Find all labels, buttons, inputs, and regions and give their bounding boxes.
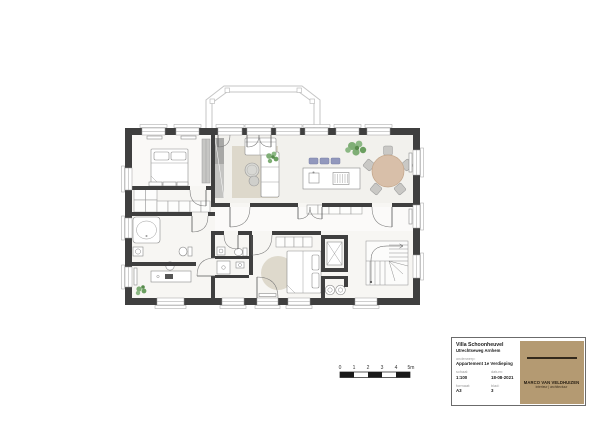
scale-label-4: 4 [395, 365, 398, 371]
wardrobe [202, 139, 210, 183]
windows-left [122, 166, 133, 289]
bedroom2-bed [287, 251, 321, 293]
windows-right [413, 148, 424, 280]
master-bed [151, 149, 188, 185]
sheet-value: 3 [491, 388, 518, 393]
bathroom-sink [133, 247, 143, 256]
logo-mark [527, 357, 577, 359]
master-bedroom-dresser [149, 182, 188, 186]
title-block: Villa Schoonheuvel Utrechtseweg Arnhem o… [451, 337, 586, 406]
elevator [327, 242, 342, 265]
firm-tagline: interieur | architectuur [520, 386, 584, 390]
title-block-info: Villa Schoonheuvel Utrechtseweg Arnhem o… [456, 342, 518, 394]
scale-label-2: 2 [367, 365, 370, 371]
format-value: A3 [456, 388, 490, 393]
scale-label-3: 3 [381, 365, 384, 371]
balcony-outline [206, 86, 320, 129]
kitchen-island [303, 168, 360, 189]
firm-logo: MARCO VAN VELDHUIZEN interieur | archite… [520, 341, 584, 404]
windows-top [140, 125, 392, 136]
scale-label-0: 0 [339, 365, 342, 371]
bedroom2-closets [276, 237, 312, 247]
drawing-sheet: 0 1 2 3 4 5m Villa Schoonheuvel Utrechts… [0, 0, 600, 424]
bathroom-toilet [179, 247, 192, 256]
scale-label-5: 5m [408, 365, 415, 371]
staircase [366, 241, 408, 285]
project-address: Utrechtseweg Arnhem [456, 348, 518, 353]
scale-label-1: 1 [353, 365, 356, 371]
bathtub [133, 217, 160, 243]
kitchen-stools [309, 158, 340, 164]
scale-bar: 0 1 2 3 4 5m [339, 365, 415, 378]
